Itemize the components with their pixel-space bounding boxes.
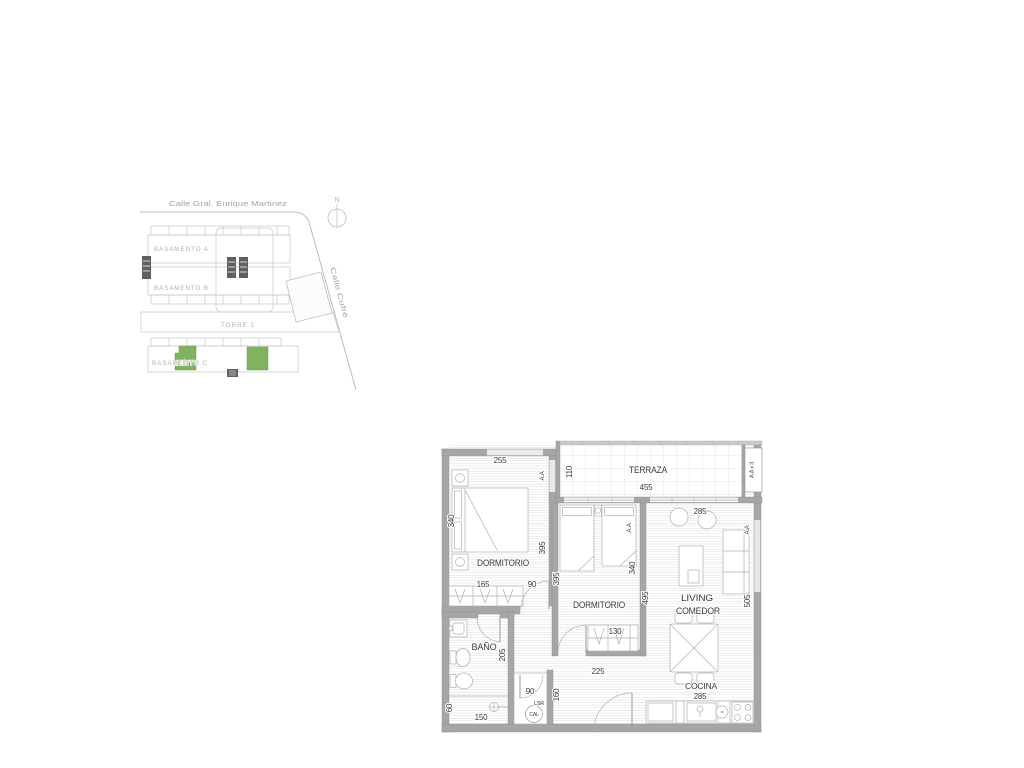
dim-dorm1-height: 340 [447,514,456,527]
label-lsr: LSR [534,701,544,707]
floorplan-listing-image: N [0,0,1024,768]
dim-closet1-width: 165 [477,580,490,589]
torre-1-label: TORRE 1 [221,322,255,329]
label-comedor: COMEDOR [676,606,721,616]
dim-door1-width: 90 [528,580,537,589]
dim-living-left: 495 [641,591,650,604]
basamento-b-label: BASAMENTO B [154,285,209,292]
label-living: LIVING [681,593,713,603]
sink-icon [687,703,716,721]
dim-cocina-width: 285 [694,692,707,701]
street-top-label: Calle Gral. Enrique Martinez [169,201,288,208]
label-aa-dorm2: A.A [627,523,633,532]
terraza-railing [560,441,762,445]
dim-dorm2-right: 340 [628,561,637,574]
label-dormitorio-2: DORMITORIO [573,600,625,610]
dim-living-right: 505 [743,594,752,607]
basamento-c-label: BASAMENTO C [152,360,208,367]
bidet-icon [450,649,470,667]
dim-bano-depth: 205 [498,648,507,661]
dim-dorm1-wall-right: 395 [538,541,547,554]
stove-icon [732,702,753,723]
label-aa-x3: A.A x 3 [750,462,756,478]
dim-terraza-width: 455 [640,483,653,492]
label-cocina: COCINA [685,682,718,691]
label-terraza: TERRAZA [629,465,667,475]
wardrobe-dorm1-icon [449,586,523,606]
label-aa-dorm1: A.A [540,471,546,480]
stair-core-icons [142,256,248,279]
pouf-icon [670,508,688,526]
sofa-icon [723,530,749,594]
highlighted-unit-2 [247,347,268,370]
dim-living-width: 285 [694,507,707,516]
kitchen-counter [646,701,754,723]
label-aa-living: A.A [745,525,751,534]
dim-hall-depth: 160 [552,688,561,701]
toilet-icon [450,673,473,689]
coffee-table-icon [679,546,703,586]
dim-terraza-depth: 110 [565,465,574,478]
dim-closet2-width: 130 [609,627,622,636]
dim-shower-width: 60 [445,703,454,712]
fridge-icon [648,703,673,721]
dim-bano-width: 150 [475,713,488,722]
site-plan: N [135,192,370,392]
basamento-a-label: BASAMENTO A [154,246,209,253]
label-dormitorio-1: DORMITORIO [477,558,529,568]
apartment-floor-plan: 255 340 A.A 395 DORMITORIO 165 90 110 TE… [440,437,770,733]
hob-icon [716,706,728,718]
stair-icon-basamento-c [227,369,238,377]
building-basamento-a [148,226,290,263]
north-arrow-icon: N [328,197,346,228]
dim-dorm1-width: 255 [494,456,507,465]
dim-dorm2-width: 225 [592,667,605,676]
label-cal: CAL [529,712,539,718]
north-label: N [334,197,339,204]
dim-dorm2-left: 395 [552,572,561,585]
label-bano: BAÑO [472,642,497,652]
dim-lsr-width: 90 [526,687,535,696]
washbasin-icon [449,620,467,637]
